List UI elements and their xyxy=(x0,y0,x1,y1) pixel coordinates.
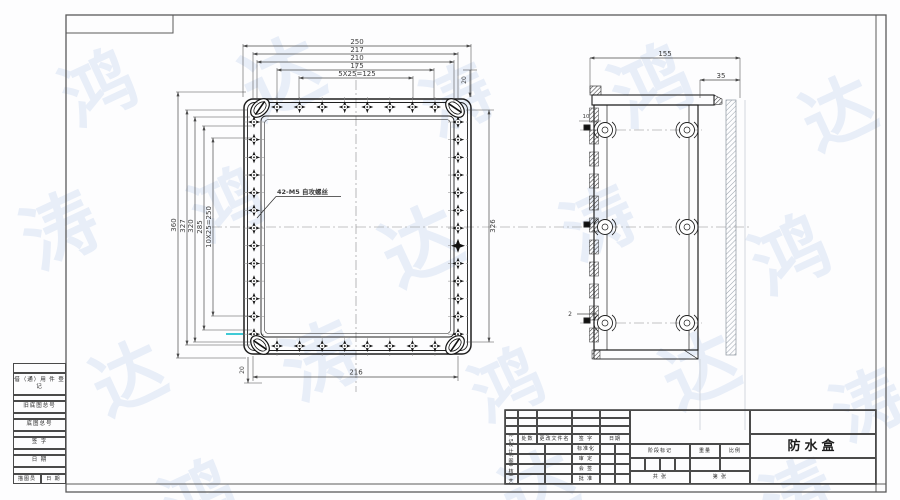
weight-cell: 重量 xyxy=(690,444,720,458)
title-block-cell xyxy=(545,464,572,474)
revision-row-cell xyxy=(518,418,537,426)
revision-row-cell xyxy=(600,418,630,426)
left-table-cell xyxy=(13,363,66,373)
left-table-cell: 描图员 xyxy=(13,474,41,484)
title-block-cell xyxy=(545,474,572,484)
revision-row-cell xyxy=(518,410,537,418)
drawing-sheet: 鸿达涛鸿达涛鸿达涛鸿达涛鸿达涛鸿达涛 xyxy=(0,0,900,500)
stage-mark-subcell xyxy=(675,458,690,471)
revision-row-cell xyxy=(572,410,600,418)
title-block-cell xyxy=(600,474,615,484)
title-block-role-cell: 审 定 xyxy=(572,454,600,464)
sheet-total-cell: 共 张 xyxy=(630,471,690,484)
title-block-header-cell: 签 字 xyxy=(572,434,600,444)
left-table-cell: 借（通）用 件 登 记 xyxy=(13,373,66,395)
title-block-cell xyxy=(630,410,750,444)
title-block-cell xyxy=(690,458,720,471)
stage-mark-subcell xyxy=(660,458,675,471)
revision-row-cell xyxy=(600,410,630,418)
title-block-cell xyxy=(750,458,876,484)
title-block-header-cell: 日期 xyxy=(600,434,630,444)
title-block-role-cell: 会 签 xyxy=(572,464,600,474)
left-table-cell: 旧底图总号 xyxy=(13,401,66,413)
left-table-cell: 底图总号 xyxy=(13,419,66,431)
title-block-cell xyxy=(518,444,545,454)
revision-row-cell xyxy=(600,426,630,434)
revision-row-cell xyxy=(537,426,572,434)
title-block-header-cell: 更改文件名 xyxy=(537,434,572,444)
title-block-cell xyxy=(545,454,572,464)
title-block-cell xyxy=(720,458,750,471)
title-block-cell xyxy=(518,454,545,464)
title-block-header-cell: 标记 xyxy=(505,434,518,444)
revision-row-cell xyxy=(505,410,518,418)
title-block-cell xyxy=(518,464,545,474)
title-block-role-cell: 标准化 xyxy=(572,444,600,454)
revision-row-cell xyxy=(537,418,572,426)
title-block-cell xyxy=(600,444,615,454)
title-block-cell xyxy=(615,444,630,454)
part-name-cell: 防水盒 xyxy=(750,434,876,458)
revision-row-cell xyxy=(572,426,600,434)
left-table-cell xyxy=(13,467,66,474)
title-block-cell xyxy=(615,474,630,484)
stage-mark-subcell xyxy=(630,458,645,471)
left-table-cell: 日 期 xyxy=(13,455,66,467)
title-block-cell xyxy=(545,444,572,454)
title-block-cell xyxy=(600,464,615,474)
revision-row-cell xyxy=(537,410,572,418)
title-block-role-cell: 审 核 xyxy=(505,464,518,474)
revision-row-cell xyxy=(518,426,537,434)
revision-row-cell xyxy=(505,426,518,434)
title-block-cell xyxy=(750,410,876,434)
title-block-role-cell: 设 计 xyxy=(505,444,518,454)
title-block-cell xyxy=(600,454,615,464)
stage-mark-cell: 阶段标记 xyxy=(630,444,690,458)
sheet-no-cell: 第 张 xyxy=(690,471,750,484)
table-text-layer: 借（通）用 件 登 记旧底图总号底图总号签 字日 期描图员日 期标记处数更改文件… xyxy=(0,0,900,500)
title-block-cell xyxy=(518,474,545,484)
revision-row-cell xyxy=(505,418,518,426)
title-block-role-cell: 制 图 xyxy=(505,454,518,464)
left-table-cell: 签 字 xyxy=(13,437,66,449)
scale-cell: 比例 xyxy=(720,444,750,458)
title-block-cell xyxy=(615,464,630,474)
title-block-role-cell: 工 艺 xyxy=(505,474,518,484)
stage-mark-subcell xyxy=(645,458,660,471)
revision-row-cell xyxy=(572,418,600,426)
title-block-role-cell: 批 准 xyxy=(572,474,600,484)
left-table-cell: 日 期 xyxy=(41,474,66,484)
title-block-header-cell: 处数 xyxy=(518,434,537,444)
title-block-cell xyxy=(615,454,630,464)
